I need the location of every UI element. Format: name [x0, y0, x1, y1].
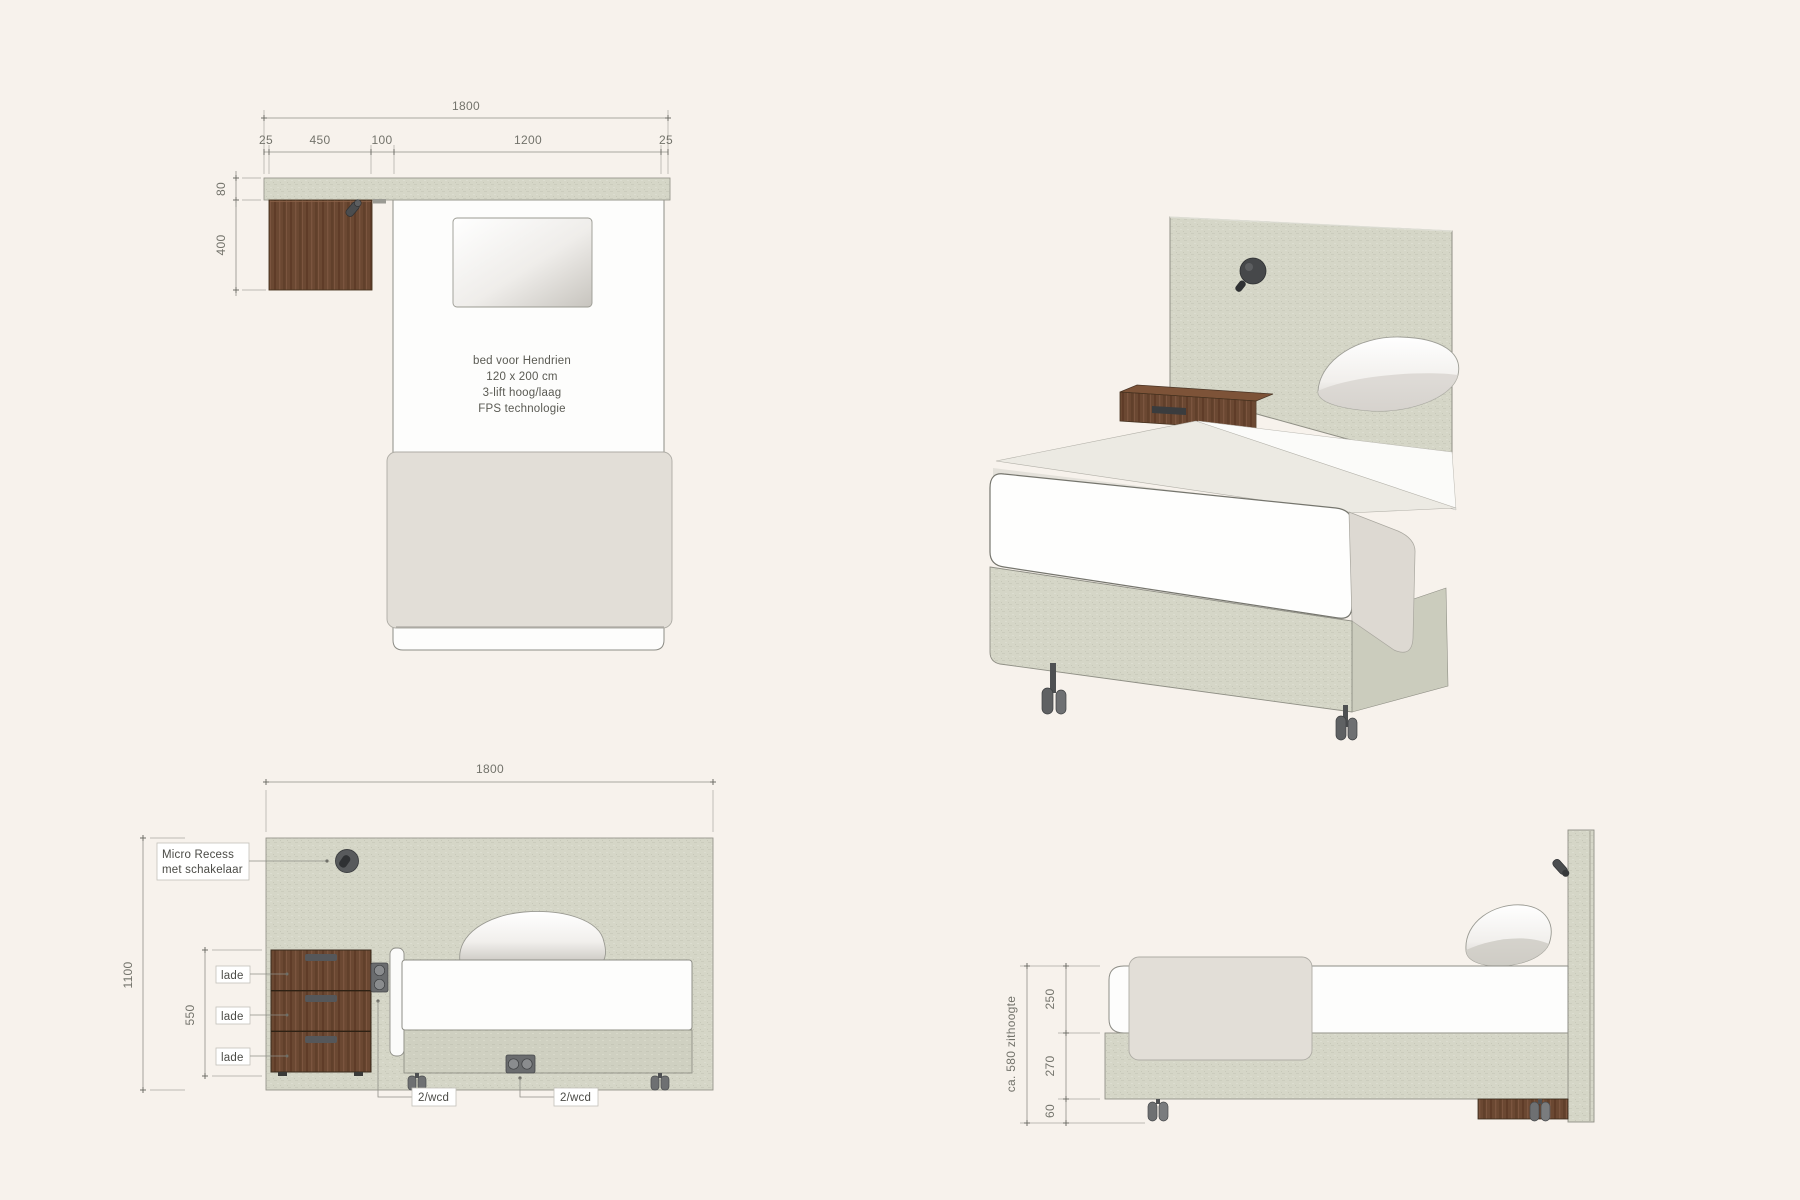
plan-dim-450: 450 — [310, 133, 331, 147]
plan-dim-headboard-thickness: 80 — [214, 171, 261, 207]
plan-headboard — [264, 178, 670, 200]
plan-dim-segments: 25 450 100 1200 25 — [259, 133, 673, 174]
plan-nightstand — [269, 200, 372, 290]
recess-label-line2: met schakelaar — [162, 864, 243, 876]
side-dim-zithoogte: ca. 580 zithoogte — [1004, 996, 1018, 1093]
recess-label-line1: Micro Recess — [162, 849, 234, 861]
note-line-4: FPS technologie — [478, 403, 565, 415]
note-line-1: bed voor Hendrien — [473, 355, 571, 367]
plan-connector — [373, 199, 386, 204]
plan-dim-cabinet-depth: 400 — [214, 200, 266, 296]
socket-label-left: 2/wcd — [418, 1092, 449, 1104]
socket-label-center: 2/wcd — [560, 1092, 591, 1104]
front-view: 1800 1100 550 Micro Recess met schakelaa… — [121, 762, 716, 1106]
plan-dim-1800: 1800 — [452, 99, 480, 113]
side-dim-60: 60 — [1043, 1104, 1057, 1118]
side-underbed-drawer — [1478, 1099, 1568, 1119]
drawer-label-3: lade — [221, 1052, 244, 1064]
plan-dim-1200: 1200 — [514, 133, 542, 147]
front-socket-horizontal — [506, 1055, 535, 1073]
front-dim-1100: 1100 — [121, 961, 135, 988]
front-dim-1800: 1800 — [476, 762, 504, 776]
plan-dim-400: 400 — [214, 235, 228, 256]
side-dim-250: 250 — [1043, 989, 1057, 1010]
side-blanket — [1129, 957, 1312, 1060]
plan-blanket — [387, 452, 672, 628]
plan-dim-80: 80 — [214, 182, 228, 196]
plan-pillow — [453, 218, 592, 307]
drawer-handle-2 — [305, 995, 337, 1002]
plan-dim-100: 100 — [372, 133, 393, 147]
note-line-2: 120 x 200 cm — [486, 371, 557, 383]
drawer-label-2: lade — [221, 1011, 244, 1023]
side-caster-left — [1148, 1099, 1168, 1121]
bed-3d-view — [990, 217, 1459, 740]
drawing-sheet: bed voor Hendrien 120 x 200 cm 3-lift ho… — [0, 0, 1800, 1200]
side-view: 250 270 60 ca. 580 zithoogte — [1004, 830, 1594, 1126]
side-dim-270: 270 — [1043, 1056, 1057, 1077]
front-recess-light — [336, 850, 359, 873]
plan-dim-25-left: 25 — [259, 133, 273, 147]
plan-dim-25-right: 25 — [659, 133, 673, 147]
plan-view: bed voor Hendrien 120 x 200 cm 3-lift ho… — [214, 99, 673, 650]
note-line-3: 3-lift hoog/laag — [483, 387, 562, 399]
front-mattress — [402, 960, 692, 1030]
side-dim-seat-height: ca. 580 zithoogte — [1004, 963, 1030, 1126]
drawing-canvas: bed voor Hendrien 120 x 200 cm 3-lift ho… — [0, 0, 1800, 1200]
front-base — [404, 1030, 692, 1073]
drawer-label-1: lade — [221, 970, 244, 982]
front-dim-width: 1800 — [263, 762, 716, 832]
front-socket-vertical — [371, 963, 388, 992]
side-pillow — [1466, 905, 1551, 966]
drawer-handle-1 — [305, 954, 337, 961]
front-dim-550: 550 — [183, 1005, 197, 1026]
drawer-handle-3 — [305, 1036, 337, 1043]
